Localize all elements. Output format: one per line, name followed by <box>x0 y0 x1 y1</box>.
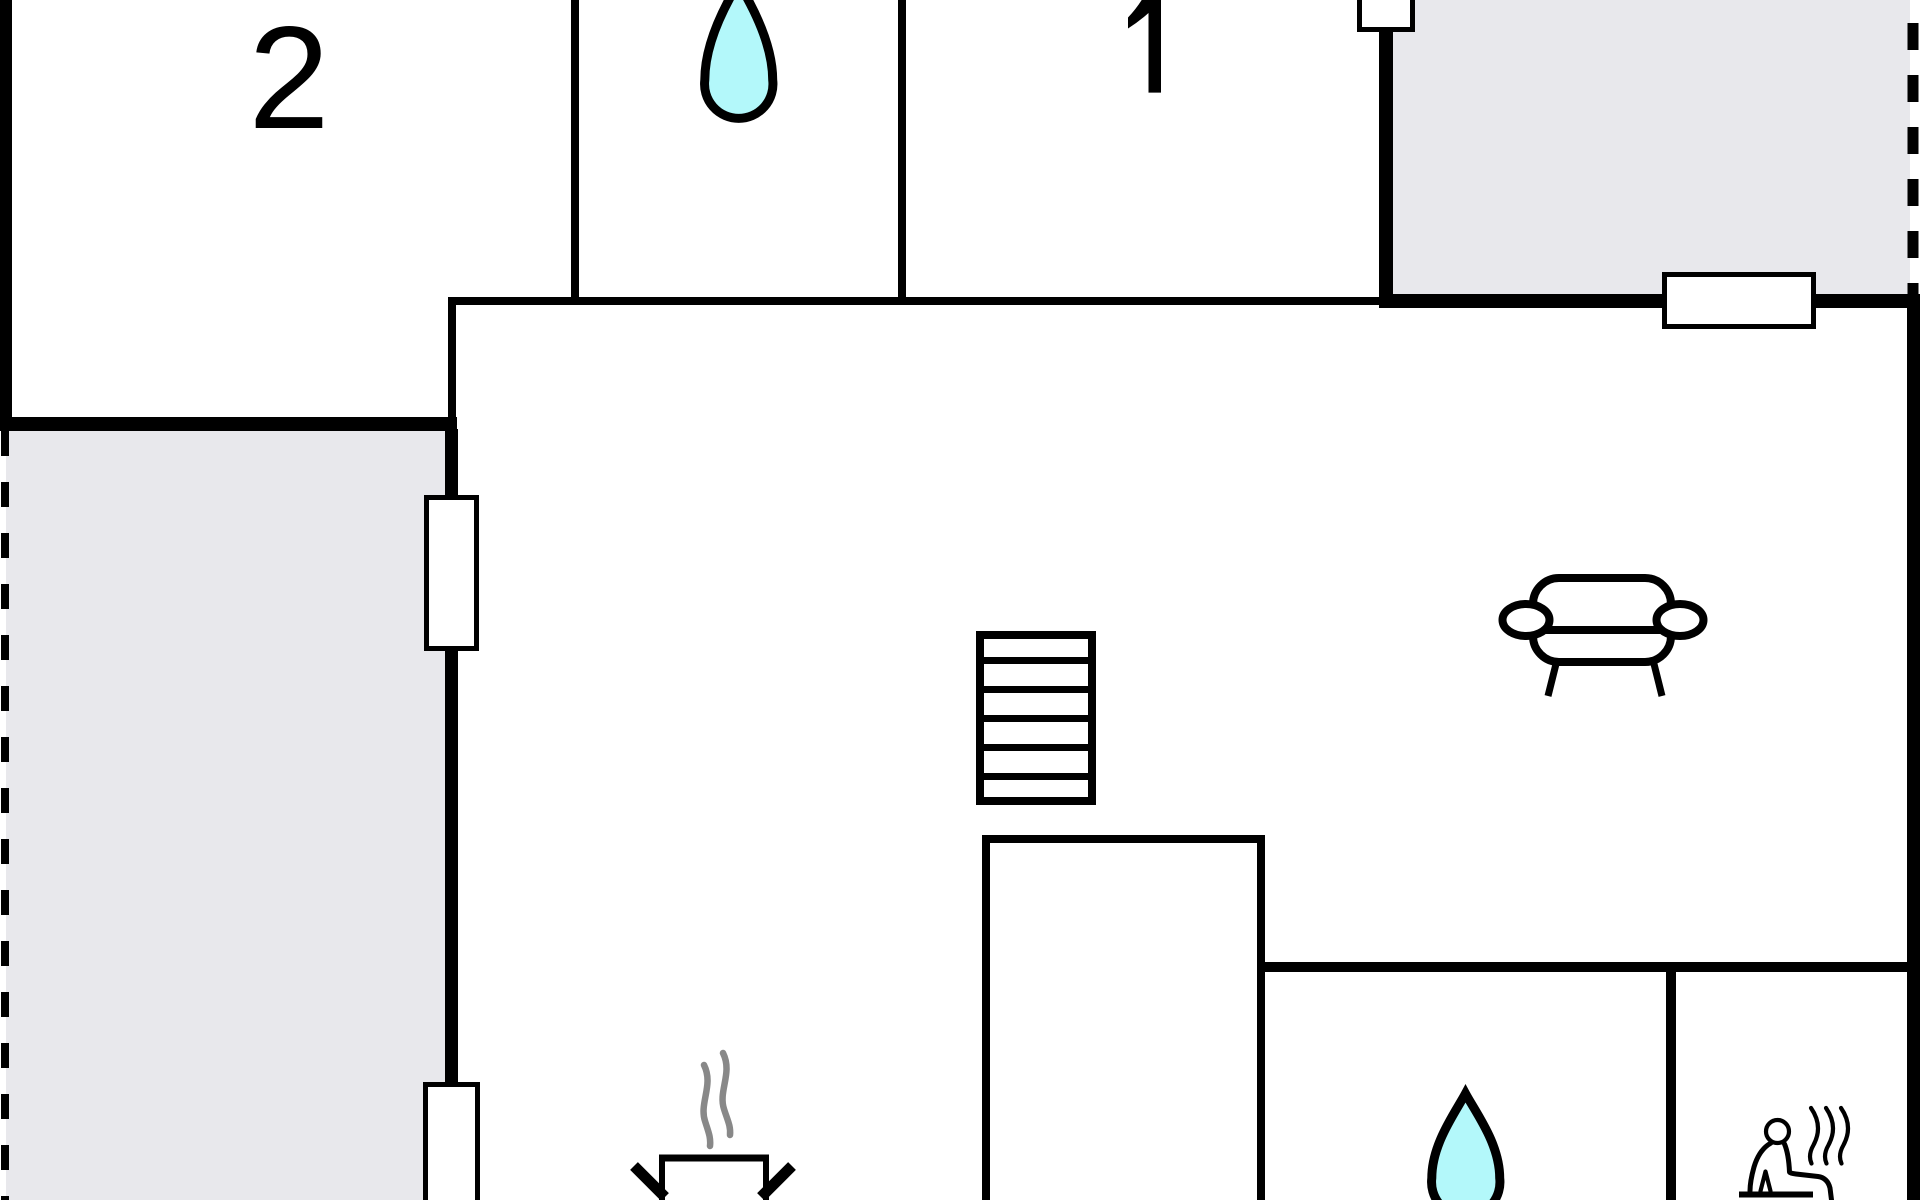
svg-text:2: 2 <box>248 0 329 159</box>
